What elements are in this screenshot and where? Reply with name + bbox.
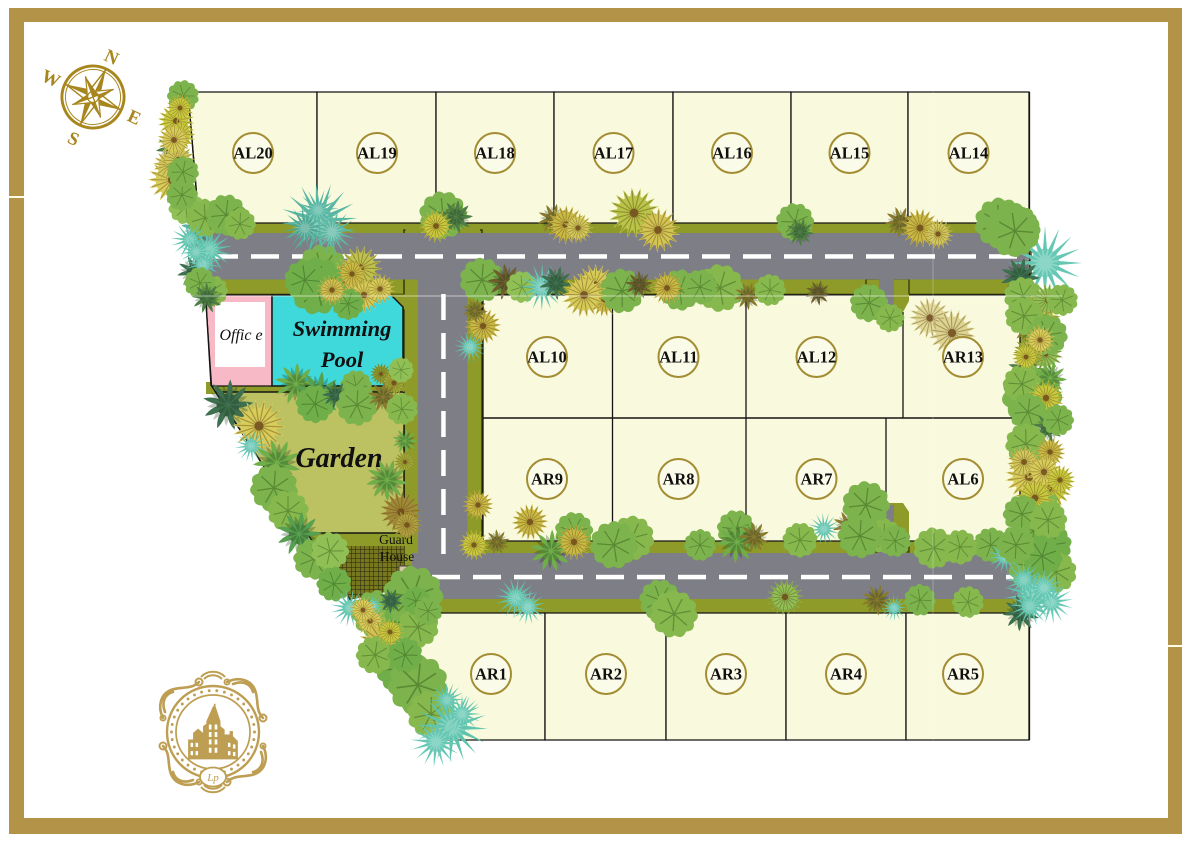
- svg-text:AL11: AL11: [659, 348, 698, 367]
- svg-text:AR13: AR13: [943, 348, 983, 367]
- svg-text:AL16: AL16: [712, 144, 751, 163]
- svg-text:AR2: AR2: [590, 665, 622, 684]
- svg-text:AL19: AL19: [357, 144, 396, 163]
- svg-text:AR8: AR8: [662, 470, 694, 489]
- svg-text:Offic e: Offic e: [219, 327, 262, 344]
- svg-text:Lp: Lp: [206, 772, 219, 784]
- svg-text:Swimming: Swimming: [293, 316, 392, 341]
- svg-text:AL10: AL10: [527, 348, 566, 367]
- svg-text:AR1: AR1: [475, 665, 507, 684]
- svg-text:House: House: [380, 549, 415, 564]
- svg-text:AL12: AL12: [797, 348, 836, 367]
- svg-text:AR9: AR9: [531, 470, 563, 489]
- svg-text:Pool: Pool: [320, 347, 364, 372]
- svg-text:AL18: AL18: [475, 144, 514, 163]
- svg-text:AL20: AL20: [233, 144, 272, 163]
- svg-text:AL14: AL14: [949, 144, 988, 163]
- svg-text:AL17: AL17: [594, 144, 633, 163]
- svg-text:AR4: AR4: [830, 665, 862, 684]
- svg-text:AR5: AR5: [947, 665, 979, 684]
- svg-text:AL6: AL6: [947, 470, 978, 489]
- svg-text:AL15: AL15: [830, 144, 869, 163]
- svg-text:AR7: AR7: [800, 470, 832, 489]
- svg-text:Garden: Garden: [295, 443, 382, 474]
- svg-text:AR3: AR3: [710, 665, 742, 684]
